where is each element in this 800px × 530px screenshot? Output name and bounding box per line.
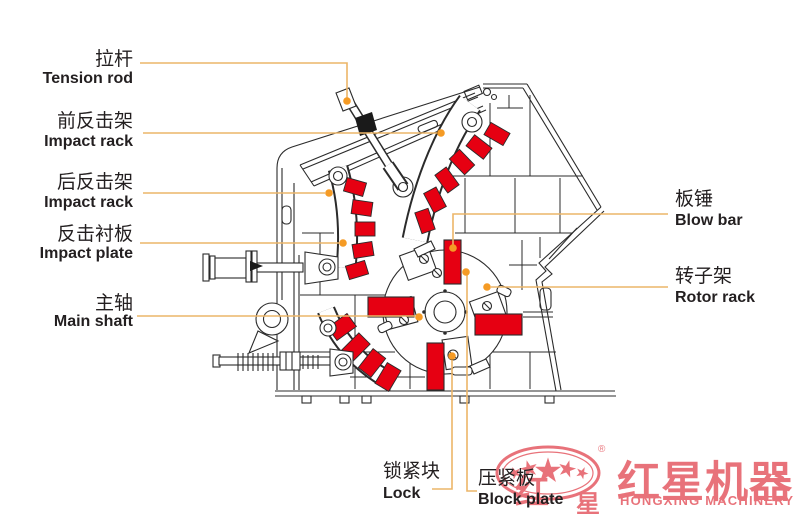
label-main-shaft-zh: 主轴 [0,294,133,314]
label-block-plate-zh: 压紧板 [478,469,535,489]
label-block-plate-en: Block plate [478,492,563,509]
label-impact-plate-zh: 反击衬板 [0,225,133,245]
label-rotor-rack-en: Rotor rack [675,290,755,307]
label-blow-bar-zh: 板锤 [675,190,713,210]
label-lock-zh: 锁紧块 [383,462,440,482]
label-lock-en: Lock [383,486,420,503]
hongxing-logo: ® 红 星 红星机器 HONGXING MACHINERY [494,440,800,525]
registered-mark: ® [598,444,606,455]
label-tension-rod-en: Tension rod [0,71,133,88]
adjusting-cylinder [203,251,338,284]
blow-bar-bottom [427,343,444,390]
logo-name-en: HONGXING MACHINERY [620,493,794,508]
label-rear-rack-en: Impact rack [0,195,133,212]
label-tension-rod-zh: 拉杆 [0,50,133,70]
logo-xing-char: 星 [576,484,600,519]
leader-tension-rod [140,63,347,98]
label-front-rack-zh: 前反击架 [0,112,133,132]
label-front-rack-en: Impact rack [0,134,133,151]
tension-bolt-rod [213,349,353,376]
impact-crusher-diagram-page: ® 红 星 红星机器 HONGXING MACHINERY 拉杆 Tension… [0,0,800,530]
wall-bearing [249,303,288,353]
blow-bar-right [475,314,522,335]
label-impact-plate-en: Impact plate [0,246,133,263]
label-main-shaft-en: Main shaft [0,314,133,331]
blow-bar-left [368,297,414,317]
label-rear-rack-zh: 后反击架 [0,173,133,193]
label-blow-bar-en: Blow bar [675,213,743,230]
label-rotor-rack-zh: 转子架 [675,267,732,287]
